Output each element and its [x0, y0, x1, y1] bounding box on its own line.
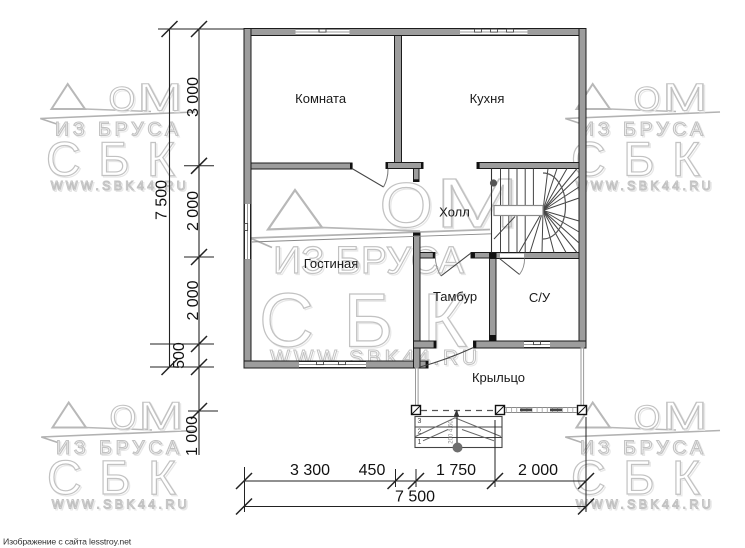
- svg-text:WWW.SBK44.RU: WWW.SBK44.RU: [576, 179, 711, 193]
- svg-text:С/У: С/У: [529, 290, 551, 305]
- svg-text:Кухня: Кухня: [470, 91, 505, 106]
- svg-text:7 500: 7 500: [395, 489, 435, 506]
- svg-text:Крыльцо: Крыльцо: [472, 370, 525, 385]
- svg-text:М: М: [663, 75, 708, 119]
- svg-text:3: 3: [418, 418, 422, 425]
- svg-text:М: М: [138, 75, 183, 119]
- svg-text:2 000: 2 000: [185, 280, 202, 320]
- svg-text:1 750: 1 750: [436, 462, 476, 479]
- svg-text:О: О: [634, 399, 661, 437]
- svg-text:О: О: [380, 170, 433, 241]
- svg-text:1: 1: [418, 439, 422, 446]
- svg-text:WWW.SBK44.RU: WWW.SBK44.RU: [576, 498, 711, 512]
- svg-text:7 500: 7 500: [154, 180, 171, 220]
- svg-text:Комната: Комната: [295, 91, 347, 106]
- svg-text:3 300: 3 300: [290, 462, 330, 479]
- svg-text:200 4.60: 200 4.60: [449, 420, 455, 444]
- svg-text:О: О: [634, 80, 661, 118]
- svg-text:500: 500: [171, 342, 188, 369]
- svg-text:2 000: 2 000: [518, 462, 558, 479]
- svg-text:Холл: Холл: [439, 205, 470, 220]
- svg-text:О: О: [109, 80, 136, 118]
- svg-text:М: М: [663, 393, 708, 437]
- svg-text:Гостиная: Гостиная: [304, 256, 359, 271]
- svg-text:Тамбур: Тамбур: [433, 289, 477, 304]
- svg-text:450: 450: [359, 462, 386, 479]
- svg-text:WWW.SBK44.RU: WWW.SBK44.RU: [52, 498, 187, 512]
- svg-text:М: М: [435, 164, 520, 242]
- svg-text:М: М: [139, 393, 184, 437]
- svg-text:3 000: 3 000: [185, 77, 202, 117]
- svg-text:2: 2: [418, 429, 422, 436]
- svg-text:2 000: 2 000: [185, 191, 202, 231]
- svg-text:1 000: 1 000: [184, 416, 201, 456]
- svg-text:О: О: [110, 399, 137, 437]
- svg-text:Изображение с сайта lesstroy.n: Изображение с сайта lesstroy.net: [3, 537, 132, 547]
